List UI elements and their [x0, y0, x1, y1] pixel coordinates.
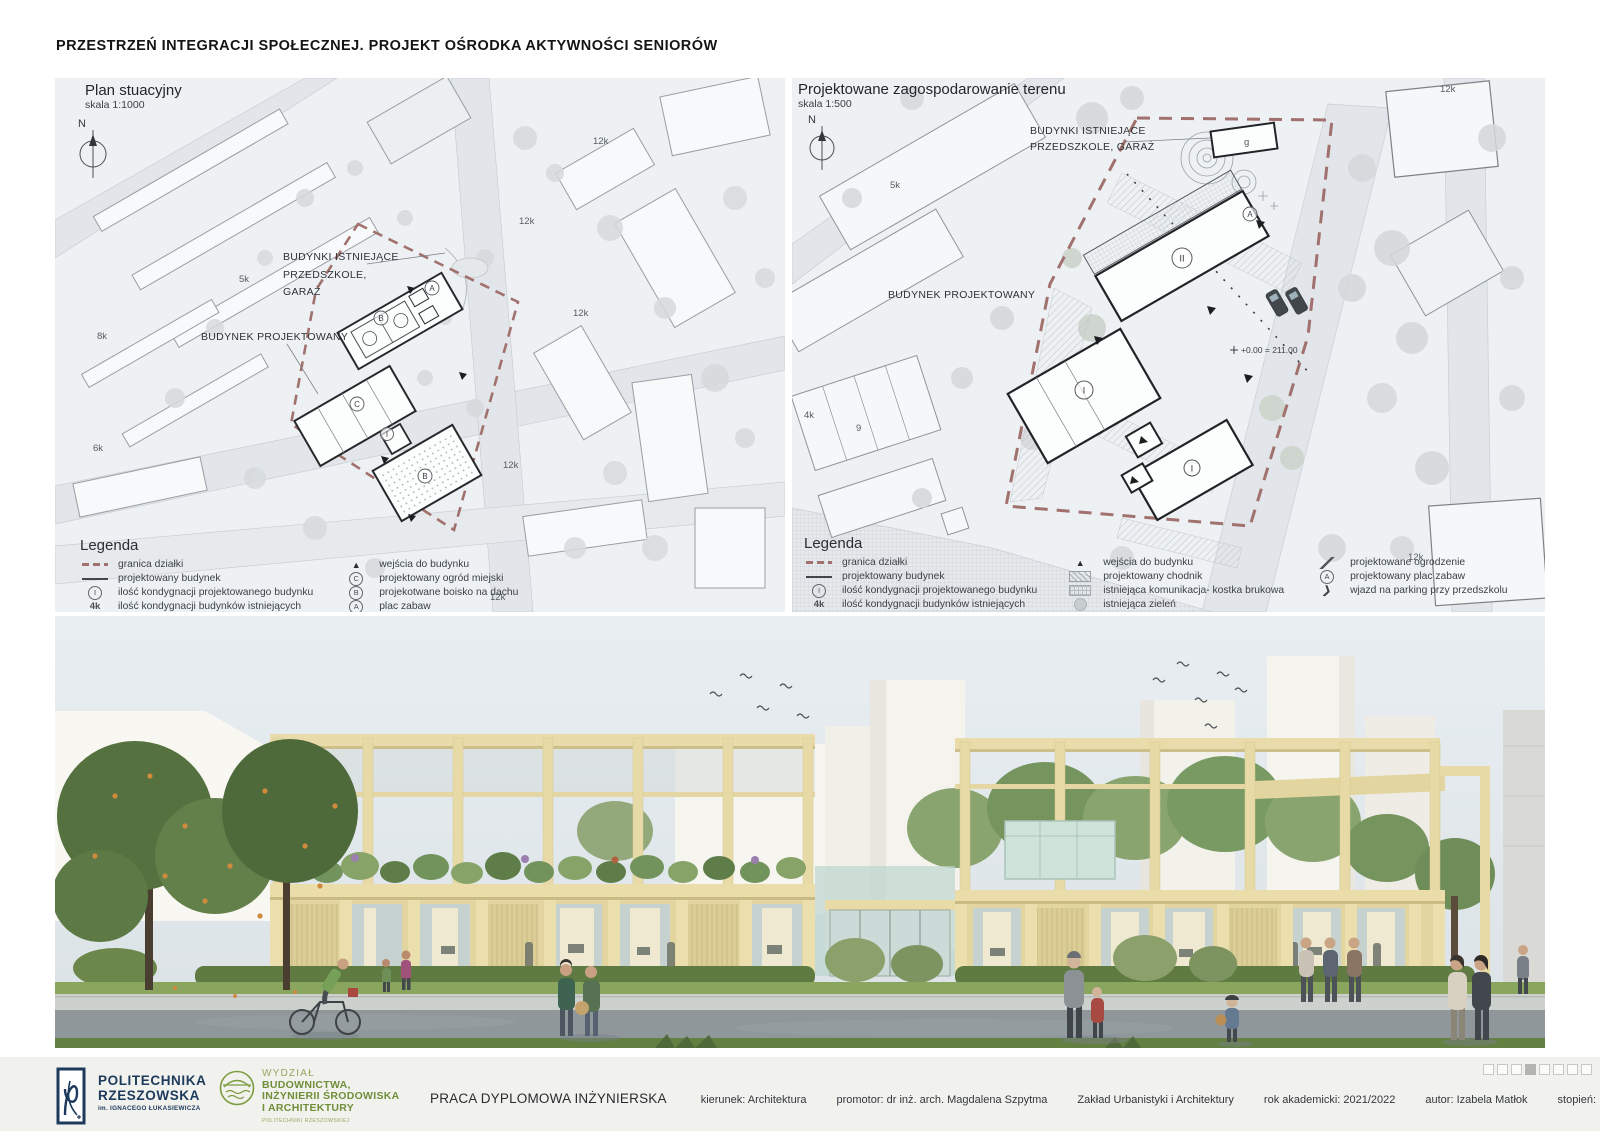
faculty-subtitle: POLITECHNIKI RZESZOWSKIEJ: [262, 1116, 400, 1128]
faculty-line3: INŻYNIERII ŚRODOWISKA: [262, 1091, 400, 1103]
rooftop-greenhouse: [1005, 821, 1115, 879]
legend-label: projektowany ogród miejski: [379, 573, 503, 584]
legend-symbol-grid-icon: [1065, 584, 1095, 597]
page-square: [1539, 1064, 1550, 1075]
storey-label: 4k: [804, 410, 814, 421]
legend-item: ❯wjazd na parking przy przedszkolu: [1312, 584, 1507, 597]
page-square: [1497, 1064, 1508, 1075]
faculty-line4: I ARCHITEKTURY: [262, 1103, 400, 1115]
lawn: [55, 982, 1545, 996]
legend-item: projektowany budynek: [80, 572, 313, 585]
legend-item: Aplac zabaw: [341, 600, 518, 612]
plan-left-header: Plan stuacyjny skala 1:1000: [85, 82, 182, 111]
marker-storeys-2: II: [1179, 254, 1184, 265]
legend-symbol-boundary-dashed-icon: [80, 558, 110, 571]
storey-label: 12k: [1440, 84, 1456, 95]
legend-label: granica działki: [118, 559, 183, 570]
garage-label: g: [1244, 137, 1249, 148]
site-plan-1-500: A II I I +0.00 = 211.00 BUDYNKI ISTNIEJĄ…: [792, 78, 1545, 612]
legend-item: Iilość kondygnacji projektowanego budynk…: [80, 586, 313, 599]
glass-bays-right: [973, 908, 1405, 974]
university-name-line2: RZESZOWSKA: [98, 1088, 206, 1103]
legend-item: ▲wejścia do budynku: [341, 558, 518, 571]
legend-label: ilość kondygnacji projektowanego budynku: [842, 585, 1037, 596]
legend-label: projektowany budynek: [118, 573, 220, 584]
legend-symbol-text-icon: 4k: [80, 600, 110, 612]
storey-label: 8k: [97, 331, 107, 342]
legend-label: plac zabaw: [379, 601, 431, 612]
page-square: [1581, 1064, 1592, 1075]
storey-label: 9: [856, 423, 861, 434]
marker-storeys-1: I: [1083, 386, 1086, 397]
legend-item: Iilość kondygnacji projektowanego budynk…: [804, 584, 1037, 597]
faculty-name: WYDZIAŁ BUDOWNICTWA, INŻYNIERII ŚRODOWIS…: [262, 1068, 400, 1127]
foreground-grass: [55, 1038, 1545, 1048]
legend-symbol-hatch-icon: [1065, 570, 1095, 583]
legend-symbol-circle-letter-icon: I: [80, 586, 110, 599]
plan-left-scale: skala 1:1000: [85, 99, 182, 111]
page-square: [1553, 1064, 1564, 1075]
project-detail: rok akademicki: 2021/2022: [1264, 1094, 1395, 1106]
plan-right-legend: Legendagranica działkiprojektowany budyn…: [804, 535, 1507, 612]
storey-label: 12k: [519, 216, 535, 227]
legend-item: projektowane ogrodzenie: [1312, 556, 1507, 569]
legend-title: Legenda: [804, 535, 1507, 552]
legend-symbol-line-solid-icon: [804, 570, 834, 583]
page-indicator: [1483, 1064, 1592, 1075]
legend-item: 4kilość kondygnacji budynków istniejącyc…: [804, 598, 1037, 611]
university-name: POLITECHNIKA RZESZOWSKA im. IGNACEGO ŁUK…: [98, 1073, 206, 1112]
legend-symbol-tree-gray-icon: [1065, 598, 1095, 611]
plan-left-title: Plan stuacyjny: [85, 82, 182, 99]
legend-label: istniejąca komunikacja- kostka brukowa: [1103, 585, 1284, 596]
storey-label: 6k: [93, 443, 103, 454]
garden-pond: [452, 258, 488, 278]
legend-item: Bprojekotwane boisko na dachu: [341, 586, 518, 599]
project-metadata: PRACA DYPLOMOWA INŻYNIERSKA kierunek: Ar…: [430, 1091, 1600, 1106]
marker-playground: A: [429, 284, 435, 293]
university-name-line1: POLITECHNIKA: [98, 1073, 206, 1088]
legend-item: istniejąca komunikacja- kostka brukowa: [1065, 584, 1284, 597]
marker-playground: A: [1247, 210, 1253, 219]
legend-label: granica działki: [842, 557, 907, 568]
label-existing-buildings: BUDYNKI ISTNIEJĄCE: [283, 251, 399, 263]
page-square-active: [1525, 1064, 1536, 1075]
legend-symbol-circle-letter-icon: C: [341, 572, 371, 585]
storey-label: 12k: [503, 460, 519, 471]
plan-left-legend: Legendagranica działkiprojektowany budyn…: [80, 537, 518, 612]
project-detail: promotor: dr inż. arch. Magdalena Szpytm…: [836, 1094, 1047, 1106]
label-proposed-building: BUDYNEK PROJEKTOWANY: [201, 331, 348, 343]
plan-right-header: Projektowane zagospodarowanie terenu ska…: [798, 81, 1066, 110]
legend-item: Cprojektowany ogród miejski: [341, 572, 518, 585]
legend-label: projekotwane boisko na dachu: [379, 587, 518, 598]
marker-garden: C: [354, 400, 360, 409]
legend-item: istniejąca zieleń: [1065, 598, 1284, 611]
north-label: N: [808, 114, 816, 126]
site-plan-1-500-map: A II I I +0.00 = 211.00 BUDYNKI ISTNIEJĄ…: [792, 78, 1545, 612]
legend-symbol-circle-letter-icon: I: [804, 584, 834, 597]
legend-label: istniejąca zieleń: [1103, 599, 1176, 610]
legend-label: wejścia do budynku: [379, 559, 469, 570]
project-detail: Zakład Urbanistyki i Architektury: [1077, 1094, 1234, 1106]
university-subtitle: im. IGNACEGO ŁUKASIEWICZA: [98, 1105, 206, 1112]
legend-label: wejścia do budynku: [1103, 557, 1193, 568]
storey-label: 12k: [573, 308, 589, 319]
north-label: N: [78, 118, 86, 130]
marker-storeys-1b: I: [1191, 464, 1194, 475]
legend-label: wjazd na parking przy przedszkolu: [1350, 585, 1507, 596]
storey-label: 5k: [239, 274, 249, 285]
label-existing-buildings-2: PRZEDSZKOLE,: [283, 269, 367, 281]
marker-storeys: I: [386, 430, 388, 439]
legend-symbol-arrow-icon: ❯: [1311, 581, 1343, 601]
politechnika-rzeszowska-logo-icon: [56, 1067, 86, 1130]
label-existing-buildings-3: GARAŻ: [283, 285, 321, 298]
legend-label: projektowane ogrodzenie: [1350, 557, 1465, 568]
legend-symbol-circle-letter-icon: B: [341, 586, 371, 599]
legend-symbol-triangle-icon: ▲: [1065, 556, 1095, 569]
page-square: [1483, 1064, 1494, 1075]
legend-item: ▲wejścia do budynku: [1065, 556, 1284, 569]
page-title: PRZESTRZEŃ INTEGRACJI SPOŁECZNEJ. PROJEK…: [56, 38, 718, 54]
legend-label: ilość kondygnacji projektowanego budynku: [118, 587, 313, 598]
legend-item: granica działki: [80, 558, 313, 571]
legend-item: 4kilość kondygnacji budynków istniejącyc…: [80, 600, 313, 612]
plan-right-title: Projektowane zagospodarowanie terenu: [798, 81, 1066, 98]
marker-court: B: [378, 314, 383, 323]
legend-item: granica działki: [804, 556, 1037, 569]
storey-label: 12k: [593, 136, 609, 147]
legend-item: Aprojektowany plac zabaw: [1312, 570, 1507, 583]
faculty-logo-icon: [218, 1069, 256, 1112]
legend-symbol-line-solid-icon: [80, 572, 110, 585]
level-label: +0.00 = 211.00: [1241, 345, 1298, 355]
storey-label: 5k: [890, 180, 900, 191]
footer: POLITECHNIKA RZESZOWSKA im. IGNACEGO ŁUK…: [0, 1057, 1600, 1131]
legend-title: Legenda: [80, 537, 518, 554]
label-proposed-building: BUDYNEK PROJEKTOWANY: [888, 289, 1035, 301]
legend-symbol-circle-letter-icon: A: [341, 600, 371, 612]
legend-symbol-boundary-dashed-icon: [804, 556, 834, 569]
legend-symbol-fence-icon: [1312, 556, 1342, 569]
legend-label: ilość kondygnacji budynków istniejących: [842, 599, 1025, 610]
marker-court-2: B: [422, 472, 427, 481]
legend-label: ilość kondygnacji budynków istniejących: [118, 601, 301, 612]
plan-right-scale: skala 1:500: [798, 98, 1066, 110]
project-type: PRACA DYPLOMOWA INŻYNIERSKA: [430, 1091, 667, 1106]
legend-symbol-text-icon: 4k: [804, 598, 834, 611]
legend-item: projektowany budynek: [804, 570, 1037, 583]
label-existing-buildings: BUDYNKI ISTNIEJĄCE: [1030, 125, 1146, 137]
legend-label: projektowany plac zabaw: [1350, 571, 1465, 582]
legend-item: projektowany chodnik: [1065, 570, 1284, 583]
legend-symbol-triangle-icon: ▲: [341, 558, 371, 571]
level-mark: +0.00 = 211.00: [1230, 345, 1298, 355]
project-detail: autor: Izabela Matłok: [1425, 1094, 1527, 1106]
site-plan-1-1000: A B C I B BUDYNKI ISTNIEJĄCE PRZEDSZKOLE…: [55, 78, 785, 612]
legend-label: projektowany budynek: [842, 571, 944, 582]
architectural-visualization: [55, 616, 1545, 1048]
legend-label: projektowany chodnik: [1103, 571, 1202, 582]
project-detail: kierunek: Architektura: [701, 1094, 807, 1106]
page-square: [1567, 1064, 1578, 1075]
label-existing-buildings-2: PRZEDSZKOLE, GARAŻ: [1030, 140, 1155, 153]
site-plan-1-1000-map: A B C I B BUDYNKI ISTNIEJĄCE PRZEDSZKOLE…: [55, 78, 785, 612]
project-detail: stopień: I: [1558, 1094, 1600, 1106]
faculty-line1: WYDZIAŁ: [262, 1068, 400, 1080]
page-square: [1511, 1064, 1522, 1075]
project-details: kierunek: Architekturapromotor: dr inż. …: [701, 1094, 1600, 1106]
